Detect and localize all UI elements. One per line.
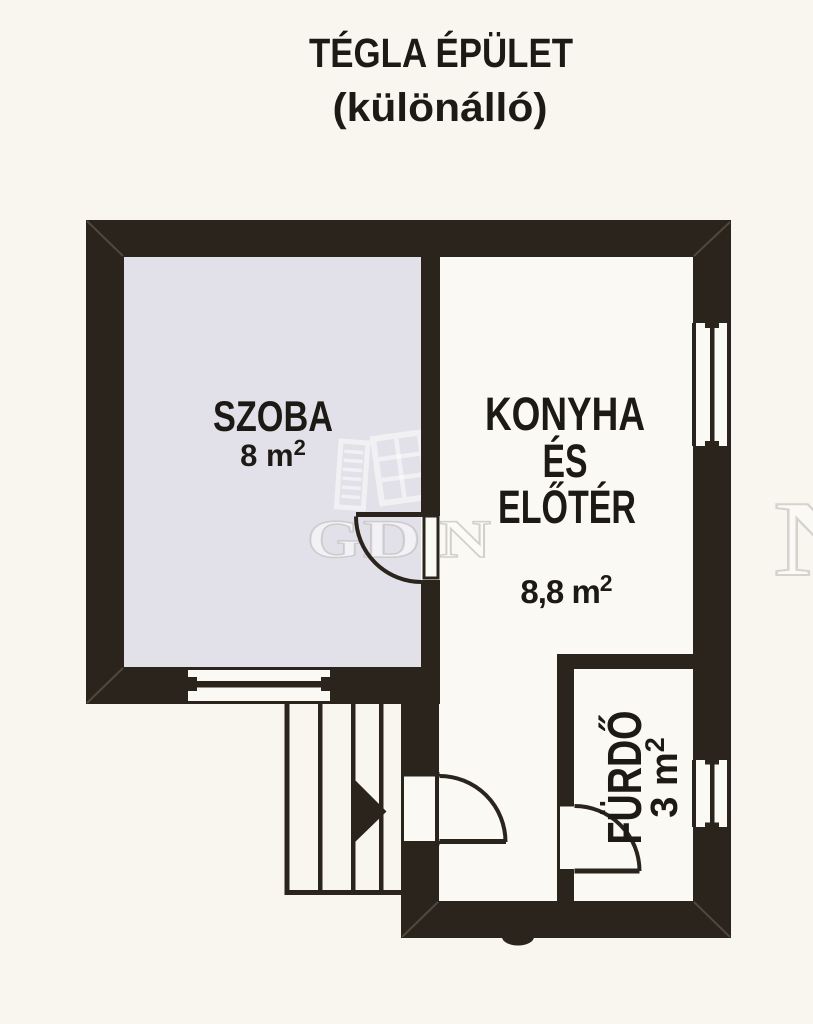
svg-text:N: N <box>439 509 491 569</box>
svg-text:SZOBA: SZOBA <box>213 393 333 441</box>
svg-text:TÉGLA ÉPÜLET: TÉGLA ÉPÜLET <box>309 30 573 76</box>
svg-text:(különálló): (különálló) <box>333 86 548 130</box>
svg-text:ELŐTÉR: ELŐTÉR <box>498 480 636 533</box>
svg-text:N: N <box>774 480 813 599</box>
svg-text:G: G <box>307 509 361 569</box>
svg-text:8,8 m2: 8,8 m2 <box>520 570 611 610</box>
svg-text:KONYHA: KONYHA <box>485 387 645 440</box>
